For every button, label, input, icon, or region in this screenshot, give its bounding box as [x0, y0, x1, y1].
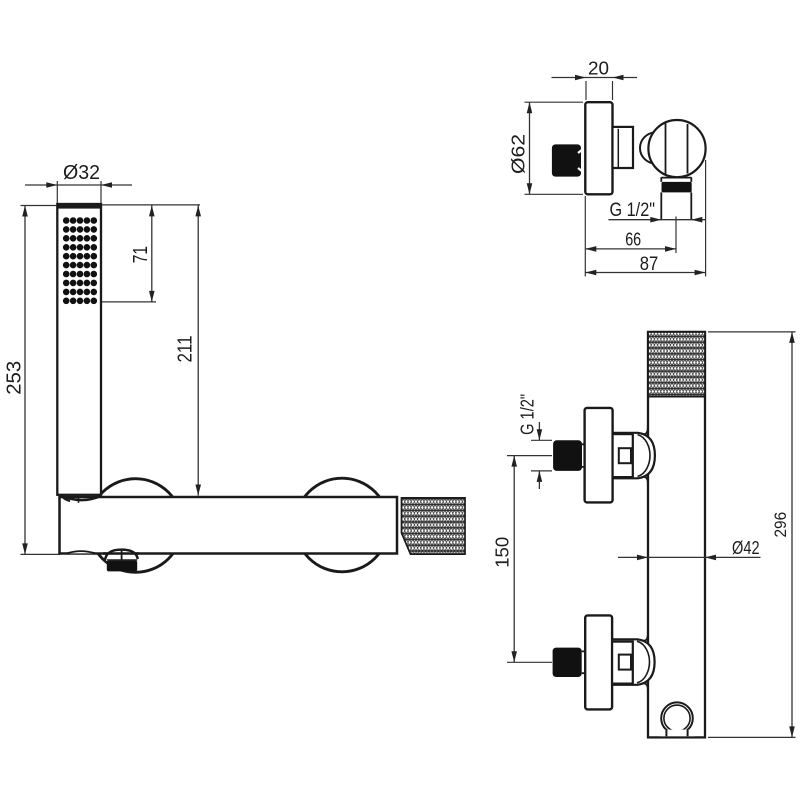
svg-text:Ø42: Ø42 [732, 537, 760, 558]
svg-text:253: 253 [3, 361, 25, 395]
svg-text:G 1/2": G 1/2" [517, 394, 538, 435]
svg-text:G 1/2": G 1/2" [610, 200, 656, 221]
svg-text:150: 150 [491, 537, 512, 568]
svg-text:Ø62: Ø62 [508, 134, 529, 174]
svg-text:Ø32: Ø32 [63, 162, 100, 184]
svg-text:87: 87 [640, 254, 659, 275]
svg-text:66: 66 [625, 229, 641, 249]
svg-text:296: 296 [771, 512, 790, 538]
svg-text:71: 71 [130, 246, 152, 263]
svg-text:211: 211 [175, 336, 197, 363]
svg-text:20: 20 [588, 57, 609, 78]
